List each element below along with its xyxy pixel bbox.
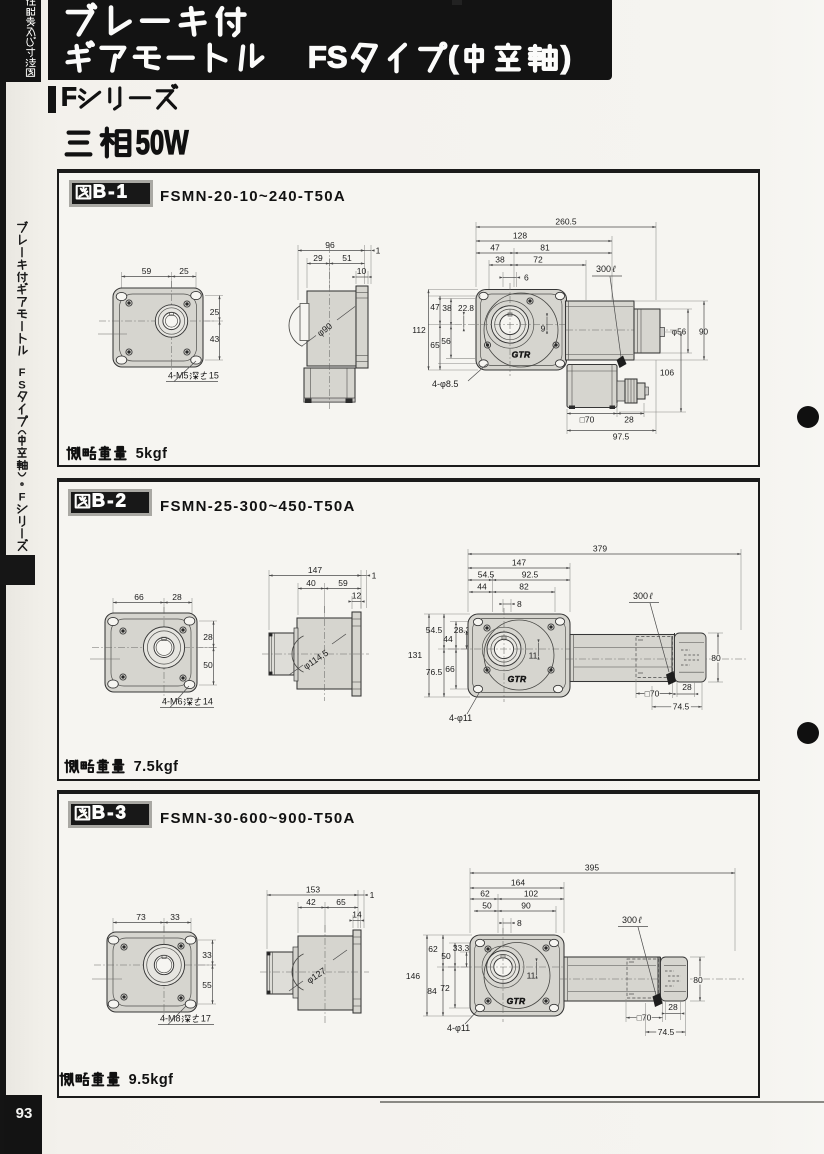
svg-text:72: 72 <box>440 983 450 993</box>
svg-text:112: 112 <box>412 325 426 335</box>
svg-text:25: 25 <box>210 307 220 317</box>
svg-text:9: 9 <box>541 324 546 334</box>
svg-text:4-M5: 4-M5 <box>168 370 189 380</box>
svg-text:72: 72 <box>533 255 543 265</box>
svg-text:62: 62 <box>480 889 490 899</box>
svg-text:28: 28 <box>624 415 634 425</box>
svg-text:300: 300 <box>622 915 637 925</box>
svg-text:131: 131 <box>408 650 422 660</box>
svg-text:F: F <box>61 82 77 112</box>
svg-text:28: 28 <box>668 1002 678 1012</box>
svg-text:54.5: 54.5 <box>426 625 443 635</box>
svg-text:80: 80 <box>693 975 703 985</box>
svg-text:4-φ8.5: 4-φ8.5 <box>432 379 458 389</box>
svg-text:82: 82 <box>519 582 529 592</box>
svg-text:42: 42 <box>306 897 316 907</box>
svg-text:28: 28 <box>682 682 692 692</box>
svg-text:5kgf: 5kgf <box>136 446 168 462</box>
svg-text:15: 15 <box>209 370 219 380</box>
svg-text:□70: □70 <box>580 415 595 425</box>
svg-text:73: 73 <box>136 912 146 922</box>
svg-text:1: 1 <box>376 246 381 256</box>
svg-text:146: 146 <box>406 971 420 981</box>
svg-text:29: 29 <box>313 253 323 263</box>
svg-text:17: 17 <box>201 1013 211 1023</box>
svg-text:33.3: 33.3 <box>453 943 470 953</box>
svg-text:92.5: 92.5 <box>522 570 539 580</box>
svg-text:55: 55 <box>202 980 212 990</box>
svg-text:395: 395 <box>585 863 599 873</box>
svg-text:66: 66 <box>445 664 455 674</box>
svg-text:ℓ: ℓ <box>638 915 642 925</box>
svg-text:): ) <box>561 40 571 75</box>
svg-text:8: 8 <box>517 918 522 928</box>
svg-text:F: F <box>19 367 26 379</box>
svg-text:54.5: 54.5 <box>478 570 495 580</box>
svg-text:FSMN-25-300~450-T50A: FSMN-25-300~450-T50A <box>160 498 356 515</box>
svg-text:GTR: GTR <box>512 350 531 360</box>
svg-text:25: 25 <box>179 266 189 276</box>
svg-text:FSMN-30-600~900-T50A: FSMN-30-600~900-T50A <box>160 810 356 827</box>
svg-text:62: 62 <box>428 944 438 954</box>
svg-text:80: 80 <box>711 653 721 663</box>
svg-text:F: F <box>19 491 26 503</box>
svg-text:6: 6 <box>524 273 529 283</box>
svg-text:50: 50 <box>203 660 213 670</box>
svg-text:153: 153 <box>306 885 320 895</box>
svg-text:93: 93 <box>16 1105 33 1122</box>
svg-text:96: 96 <box>325 240 335 250</box>
svg-text:1: 1 <box>372 571 377 581</box>
svg-text:7.5kgf: 7.5kgf <box>134 759 179 775</box>
svg-text:S: S <box>18 379 26 391</box>
svg-text:84: 84 <box>427 986 437 996</box>
svg-text:8: 8 <box>517 599 522 609</box>
svg-text:12: 12 <box>352 591 362 601</box>
svg-text:14: 14 <box>352 910 362 920</box>
svg-text:□70: □70 <box>637 1013 652 1023</box>
svg-text:47: 47 <box>490 243 500 253</box>
svg-text:ℓ: ℓ <box>612 264 616 274</box>
svg-text:97.5: 97.5 <box>613 432 630 442</box>
svg-text:81: 81 <box>540 243 550 253</box>
svg-text:1: 1 <box>370 890 375 900</box>
svg-text:10: 10 <box>357 266 367 276</box>
svg-text:56: 56 <box>441 336 451 346</box>
svg-text:50: 50 <box>482 901 492 911</box>
svg-text:11: 11 <box>527 971 536 981</box>
svg-text:28: 28 <box>203 632 213 642</box>
svg-text:50W: 50W <box>136 124 190 162</box>
svg-text:59: 59 <box>338 578 348 588</box>
svg-text:FS: FS <box>308 40 348 75</box>
svg-text:90: 90 <box>699 328 709 337</box>
svg-text:14: 14 <box>203 696 213 706</box>
svg-text:147: 147 <box>512 558 526 568</box>
svg-text:33: 33 <box>202 950 212 960</box>
svg-text:33: 33 <box>170 912 180 922</box>
svg-text:106: 106 <box>660 368 674 378</box>
svg-text:44: 44 <box>477 582 487 592</box>
svg-text:4-φ11: 4-φ11 <box>449 713 472 723</box>
svg-text:51: 51 <box>342 253 352 263</box>
svg-text:300: 300 <box>633 591 648 601</box>
svg-text:38: 38 <box>442 303 452 313</box>
svg-text:9.5kgf: 9.5kgf <box>129 1072 174 1088</box>
svg-text:147: 147 <box>308 565 322 575</box>
svg-text:43: 43 <box>210 334 220 344</box>
svg-text:40: 40 <box>306 578 316 588</box>
svg-text:65: 65 <box>430 340 440 350</box>
svg-text:4-φ11: 4-φ11 <box>447 1023 470 1033</box>
svg-text:B-2: B-2 <box>92 489 128 510</box>
svg-text:74.5: 74.5 <box>658 1027 675 1037</box>
svg-text:76.5: 76.5 <box>426 667 443 677</box>
svg-text:65: 65 <box>336 897 346 907</box>
svg-text:GTR: GTR <box>507 996 526 1006</box>
svg-text:ℓ: ℓ <box>649 591 653 601</box>
svg-text:128: 128 <box>513 231 527 241</box>
svg-text:11: 11 <box>529 651 538 661</box>
svg-text:B-1: B-1 <box>93 180 129 201</box>
svg-text:59: 59 <box>142 266 152 276</box>
svg-text:300: 300 <box>596 264 611 274</box>
svg-text:B-3: B-3 <box>92 801 128 822</box>
svg-text:260.5: 260.5 <box>555 217 577 227</box>
svg-text:90: 90 <box>521 901 531 911</box>
svg-text:74.5: 74.5 <box>673 702 690 712</box>
svg-text:379: 379 <box>593 544 607 554</box>
svg-text:102: 102 <box>524 889 538 899</box>
svg-text:38: 38 <box>495 255 505 265</box>
svg-text:47: 47 <box>430 302 440 312</box>
svg-text:66: 66 <box>134 592 144 602</box>
svg-text:164: 164 <box>511 878 525 888</box>
svg-text:50: 50 <box>441 951 451 961</box>
svg-text:28: 28 <box>172 592 182 602</box>
svg-text:FSMN-20-10~240-T50A: FSMN-20-10~240-T50A <box>160 188 346 205</box>
svg-text:GTR: GTR <box>508 674 527 684</box>
svg-text:44: 44 <box>443 634 453 644</box>
svg-text:22.8: 22.8 <box>458 304 474 313</box>
svg-text:(: ( <box>448 40 459 75</box>
